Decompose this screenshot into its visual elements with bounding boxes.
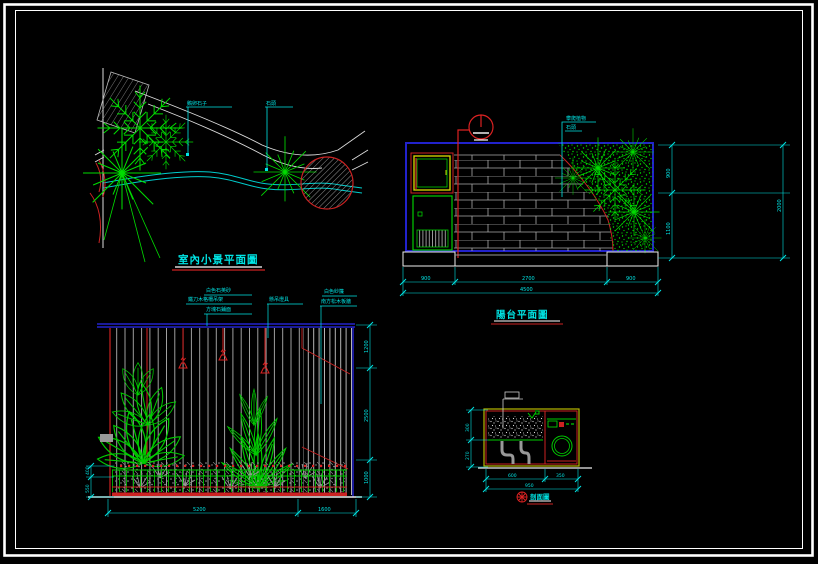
balcony-elevation-view: 攀爬植物 石頭 900 2700 900 4500 900 1100 xyxy=(400,115,790,324)
leader-pebbles: 鵝卵石子 xyxy=(186,100,232,156)
wall-fixture xyxy=(100,434,113,442)
dim-label: 270 xyxy=(465,451,471,460)
soil-fill xyxy=(488,416,543,439)
leader-stone: 石頭 xyxy=(265,101,293,171)
plan-title-text: 室內小景平面圖 xyxy=(178,253,259,266)
leader-label: 方塊石鋪面 xyxy=(206,306,231,313)
balcony-leader-stone-label: 石頭 xyxy=(566,125,576,131)
balcony-right-dimensions: 900 1100 2000 xyxy=(658,142,790,261)
plan-view: 鵝卵石子 石頭 室內小景平面圖 xyxy=(83,68,368,270)
ceiling-blue-lines xyxy=(97,324,355,327)
leader-stone-label: 石頭 xyxy=(266,101,276,107)
leader-label: 鐵刀木格柵吊架 xyxy=(188,296,223,303)
dim-label: 1100 xyxy=(666,222,672,235)
plan-view-title: 室內小景平面圖 xyxy=(172,253,265,270)
section-title-group: 剖面圖 xyxy=(517,492,553,504)
dim-label: 2500 xyxy=(364,409,370,422)
dim-label: 900 xyxy=(421,276,431,282)
wall-elevation-view: 白色石英砂 鐵刀木格柵吊架 方塊石鋪面 懸吊燈具 白色紗簾 南方松木板牆 120… xyxy=(85,287,377,517)
dim-label: 2000 xyxy=(777,199,783,212)
leader-label: 懸吊燈具 xyxy=(269,296,289,303)
drain-pipes xyxy=(502,441,529,464)
balcony-bottom-dimensions: 900 2700 900 4500 xyxy=(400,267,661,296)
section-mark-icon xyxy=(517,492,527,502)
cad-canvas: 鵝卵石子 石頭 室內小景平面圖 xyxy=(0,0,818,564)
washer-door xyxy=(552,436,572,456)
dim-label: 950 xyxy=(525,483,534,489)
dim-label: 4500 xyxy=(520,287,533,293)
cabinet-upper xyxy=(411,153,453,193)
wall-bottom-dimensions: 5200 1600 xyxy=(105,499,359,517)
stone-circle xyxy=(301,157,353,209)
leader-label: 白色石英砂 xyxy=(206,287,231,294)
dim-label: 900 xyxy=(666,168,672,178)
dim-label: 550 xyxy=(85,484,91,493)
section-title-text: 剖面圖 xyxy=(530,492,550,501)
leader-label: 白色紗簾 xyxy=(324,288,344,295)
section-detail-view: 300 270 600 350 950 剖面圖 xyxy=(465,392,592,504)
section-bottom-dimensions: 600 350 950 xyxy=(483,469,581,492)
dim-label: 1200 xyxy=(364,340,370,353)
dim-label: 400 xyxy=(85,466,91,475)
balcony-title-text: 陽台平面圖 xyxy=(496,309,549,321)
washing-machine xyxy=(547,419,576,461)
louver-grille xyxy=(417,230,448,247)
wall-right-dimensions: 1200 2500 1000 xyxy=(356,322,377,500)
balcony-view-title: 陽台平面圖 xyxy=(491,309,563,324)
plan-plant-starburst-left xyxy=(83,129,161,262)
dim-label: 600 xyxy=(508,473,517,479)
dim-label: 300 xyxy=(465,423,471,432)
cad-drawing: 鵝卵石子 石頭 室內小景平面圖 xyxy=(0,0,818,564)
dim-label: 2700 xyxy=(522,276,535,282)
balcony-leader-plants-label: 攀爬植物 xyxy=(566,115,586,122)
dim-label: 1000 xyxy=(364,471,370,484)
base-plinth xyxy=(403,252,658,266)
leader-pebbles-label: 鵝卵石子 xyxy=(187,100,207,107)
leader-label: 南方松木板牆 xyxy=(321,298,351,305)
dim-label: 5200 xyxy=(193,507,206,513)
dim-label: 900 xyxy=(626,276,636,282)
cabinet-lower xyxy=(413,196,452,250)
dim-label: 1600 xyxy=(318,507,331,513)
dim-label: 350 xyxy=(556,473,565,479)
